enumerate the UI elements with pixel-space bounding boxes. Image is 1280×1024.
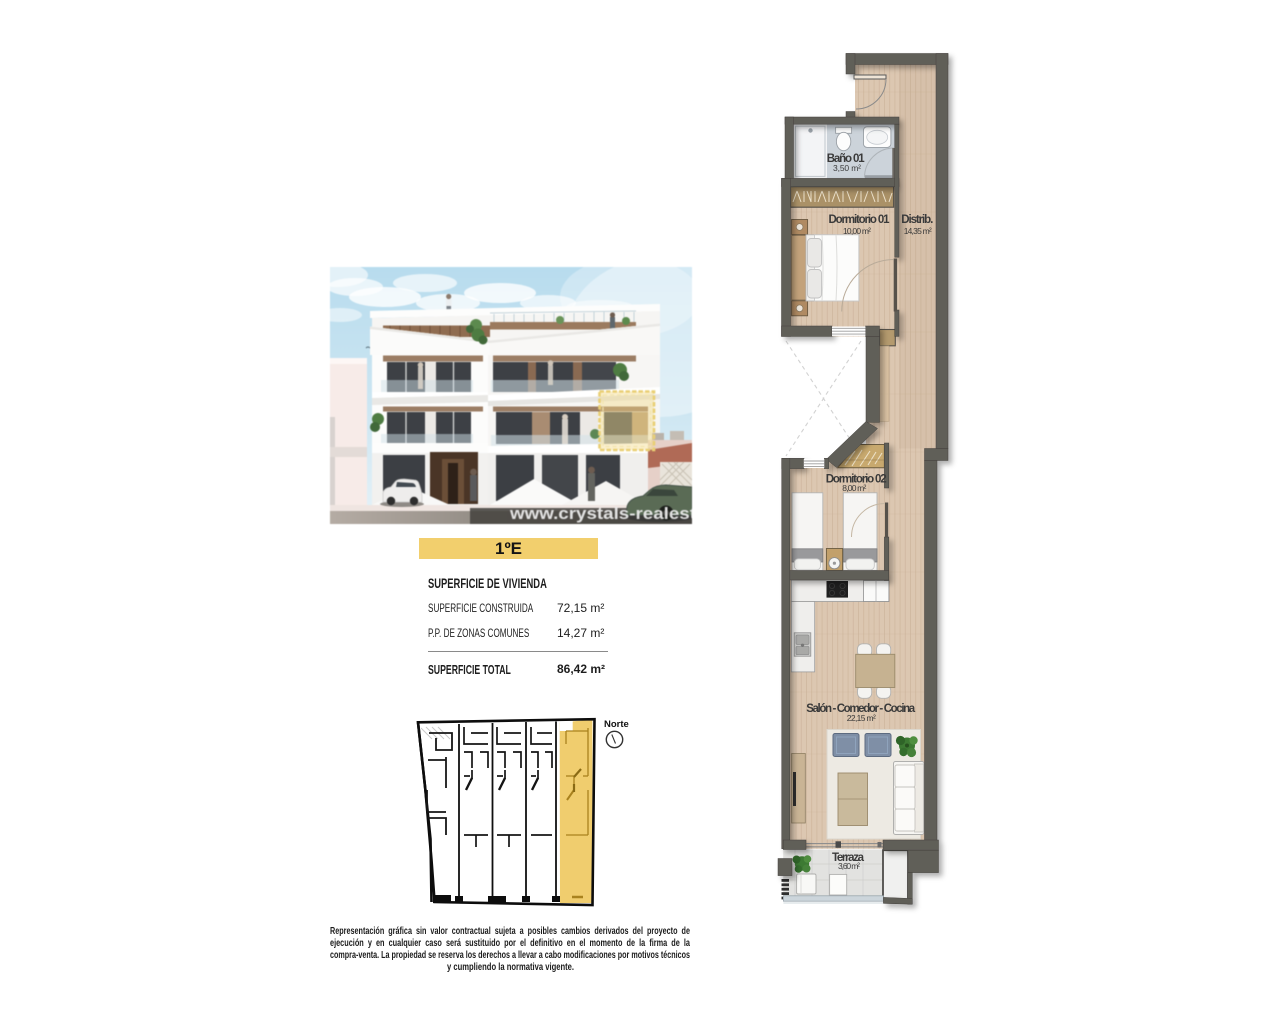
svg-text:10,00 m²: 10,00 m² — [843, 226, 871, 236]
svg-text:14,35 m²: 14,35 m² — [904, 226, 932, 236]
svg-text:www.crystals-realest: www.crystals-realest — [509, 505, 692, 523]
svg-text:22,15 m²: 22,15 m² — [847, 713, 876, 723]
svg-text:Distrib.: Distrib. — [901, 214, 933, 226]
svg-text:3,50 m²: 3,50 m² — [833, 163, 861, 173]
svg-text:Dormitorio 01: Dormitorio 01 — [829, 214, 891, 226]
svg-text:8,00 m²: 8,00 m² — [842, 483, 866, 493]
svg-text:Norte: Norte — [604, 719, 629, 730]
svg-text:3,60 m²: 3,60 m² — [838, 861, 860, 871]
